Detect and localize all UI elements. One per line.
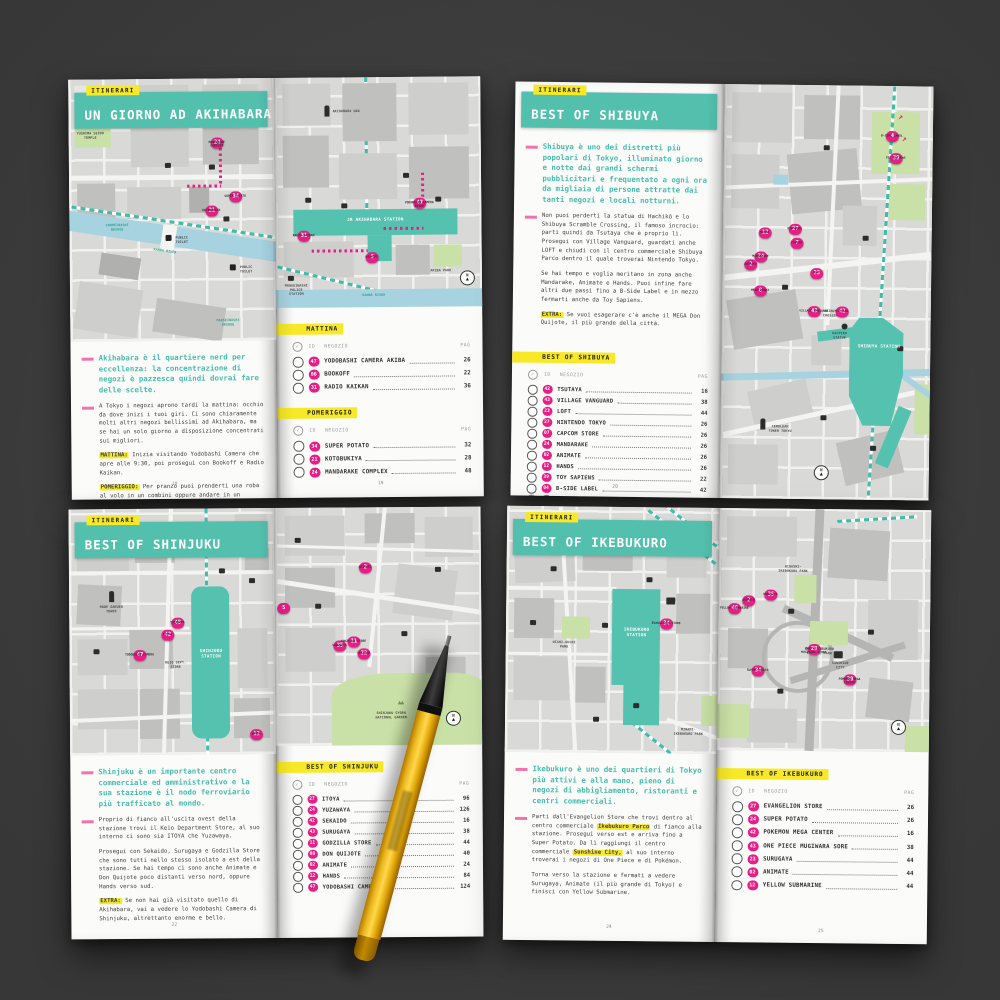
shop-page: 22 xyxy=(695,476,707,482)
list-item[interactable]: 27EVANGELION STORE26 xyxy=(732,801,914,813)
list-item[interactable]: 02ANIMATE44 xyxy=(731,867,913,879)
station-label: IKEBUKURO STATION xyxy=(618,627,655,639)
map-marker: 32SEKAIDO xyxy=(357,639,369,659)
map-label: MODE GAKUEN TOWER xyxy=(99,605,123,613)
page-title: BEST OF SHINJUKU xyxy=(85,536,222,552)
public-toilet-icon xyxy=(230,264,236,270)
map-block xyxy=(98,253,141,281)
paragraph-text: Torna verso la stazione e fermati a vede… xyxy=(531,872,682,896)
paragraph-text: A Tokyo i negozi aprono tardi la mattina… xyxy=(99,402,264,444)
highlight-label: MATTINA: xyxy=(99,453,128,459)
map-marker: 34SUPER POTATO xyxy=(229,182,241,202)
list-item[interactable]: 12HANDS26 xyxy=(527,462,707,474)
shop-page: 38 xyxy=(902,844,914,850)
shop-id-badge: 31 xyxy=(308,383,319,393)
shop-icon xyxy=(341,203,347,208)
page-akihabara-right: JR AKIHABARA STATION AKIHABARA UDX AKIBA… xyxy=(274,76,484,498)
map-block xyxy=(396,245,430,275)
checkbox[interactable] xyxy=(527,440,537,450)
map-marker: 2ANIMATE xyxy=(744,250,756,270)
title-banner: ITINERARI BEST OF SHINJUKU xyxy=(75,521,268,558)
checkbox[interactable] xyxy=(293,441,304,452)
map-marker: 42ITOYA xyxy=(161,621,173,641)
shop-page: 38 xyxy=(458,828,470,834)
checkbox[interactable] xyxy=(293,850,303,860)
shop-icon xyxy=(551,566,557,571)
checkbox[interactable] xyxy=(527,462,537,472)
map-block xyxy=(575,667,605,703)
map-block xyxy=(676,594,710,634)
shop-name: SUPER POTATO xyxy=(763,817,807,823)
list-item[interactable]: 02ANIMATE26 xyxy=(527,451,707,463)
shop-id-badge: 02 xyxy=(541,451,551,460)
check-icon: ✓ xyxy=(292,780,302,790)
dot-leader xyxy=(373,389,455,391)
body-paragraph: Prosegui con Sekaido, Surugaya e Godzill… xyxy=(99,847,264,891)
map-label: KEIO DEPT. STORE xyxy=(164,661,188,669)
list-item[interactable]: 12YELLOW SUBMARINE44 xyxy=(731,880,913,892)
spread-ikebukuro: IKEBUKURO STATION NISHI-GUCHI PARK MINAM… xyxy=(503,506,932,944)
shop-id-badge: 06 xyxy=(308,370,319,380)
checkbox[interactable] xyxy=(293,370,304,381)
dot-leader xyxy=(852,849,898,850)
map-block xyxy=(78,689,138,729)
shop-name: HANDS xyxy=(556,464,574,470)
shop-page: 44 xyxy=(695,410,707,416)
map-park xyxy=(905,726,929,752)
compass-icon: N xyxy=(460,270,475,285)
shop-page: 32 xyxy=(459,442,471,448)
dot-leader xyxy=(586,391,692,393)
shop-page: 126 xyxy=(458,806,470,812)
ikebukuro-station xyxy=(623,669,660,725)
map-marker: 2ANIMATE xyxy=(359,553,371,573)
map-marker: 6BOOKOFF xyxy=(366,243,378,263)
col-id: ID xyxy=(309,428,316,433)
dot-leader xyxy=(354,376,455,378)
rail-line xyxy=(630,721,679,754)
col-id: ID xyxy=(544,372,551,377)
checkbox[interactable] xyxy=(732,854,743,865)
map-marker: 2ANIMATE xyxy=(742,586,754,606)
body-paragraph: Torna verso la stazione e fermati a vede… xyxy=(531,871,702,899)
shop-page: 38 xyxy=(696,399,708,405)
page-ikebukuro-left: IKEBUKURO STATION NISHI-GUCHI PARK MINAM… xyxy=(503,506,720,942)
checkbox[interactable] xyxy=(293,872,303,882)
list-item[interactable]: 31RADIO KAIKAN36 xyxy=(293,381,471,393)
list-heading: BEST OF SHIBUYA xyxy=(512,351,615,363)
checkbox[interactable] xyxy=(527,484,537,494)
list-header-row: ✓ ID NEGOZIO PAG xyxy=(293,425,471,437)
map-marker: 21KOTOBUKIYA xyxy=(205,197,217,217)
list-item[interactable]: 34SUPER POTATO32 xyxy=(293,440,471,452)
itinerari-tag: ITINERARI xyxy=(86,85,139,95)
body-paragraph: MATTINA: Inizia visitando Yodobashi Came… xyxy=(99,450,264,477)
higashi-ikebukuro-park xyxy=(794,575,816,603)
shop-icon xyxy=(530,620,536,625)
map-marker: 12HANDS xyxy=(759,218,771,238)
map-marker: 12HANDS xyxy=(250,720,262,740)
shop-page: 26 xyxy=(695,454,707,460)
pond xyxy=(773,175,788,185)
map-road xyxy=(506,586,616,591)
shop-id-badge: 34 xyxy=(309,441,320,451)
spread-akihabara: YUSHIMA SEIDO TEMPLE KANDA RIVER SHOHEIB… xyxy=(68,76,484,500)
checkbox[interactable] xyxy=(293,454,304,465)
shop-icon xyxy=(602,623,608,628)
shop-name: SURUGAYA xyxy=(322,829,350,835)
spread-shibuya: ITINERARI BEST OF SHIBUYA Shibuya è uno … xyxy=(510,81,933,500)
mode-gakuen-tower-icon xyxy=(109,591,114,602)
shop-page: 84 xyxy=(458,872,470,878)
map-shinjuku-west: SHINJUKU STATION MODE GAKUEN TOWER KEIO … xyxy=(69,508,277,755)
list-item[interactable]: 27ITOYA96 xyxy=(293,794,470,805)
checkbox[interactable] xyxy=(293,795,303,805)
map-block xyxy=(747,708,797,743)
shop-icon xyxy=(868,630,874,635)
map-block xyxy=(827,528,890,582)
map-shibuya: SHIBUYA STATION SHIBUYA CROSSING HACHIKO… xyxy=(719,84,933,501)
map-block xyxy=(728,444,778,485)
shop-lists: BEST OF IKEBUKURO ✓ ID NEGOZIO PAG 27EVA… xyxy=(731,760,914,895)
shop-id-badge: 47 xyxy=(308,357,319,367)
shop-id-badge: 04 xyxy=(541,484,551,493)
dot-leader xyxy=(392,473,456,475)
list-item[interactable]: 21KOTOBUKIYA28 xyxy=(293,453,471,465)
cerulean-tower-icon xyxy=(760,418,765,429)
bridge-label: MANSEIBASHI BRIDGE xyxy=(214,318,242,326)
map-park xyxy=(717,704,749,738)
page-number: 25 xyxy=(715,928,927,935)
shop-icon xyxy=(93,649,99,654)
body-paragraph: EXTRA: Se vuoi esagerare c'è anche il ME… xyxy=(541,310,709,329)
page-shibuya-right: SHIBUYA STATION SHIBUYA CROSSING HACHIKO… xyxy=(719,84,933,501)
list-item[interactable]: 42TSUTAYA16 xyxy=(528,385,708,397)
shop-name: RADIO KAIKAN xyxy=(324,385,368,391)
map-akihabara-west: YUSHIMA SEIDO TEMPLE KANDA RIVER SHOHEIB… xyxy=(68,78,276,342)
shinjuku-station xyxy=(191,586,230,738)
map-label: AKIHABARA UDX xyxy=(332,109,360,113)
list-item[interactable]: 43VILLAGE VANGUARD38 xyxy=(528,396,708,408)
checkbox[interactable] xyxy=(732,801,743,812)
body-paragraph: Proprio di fianco all'uscita ovest della… xyxy=(99,815,264,842)
checkbox[interactable] xyxy=(732,827,743,838)
list-item[interactable]: 23SURUGAYA44 xyxy=(732,854,914,866)
paragraph-text: Se non hai già visitato quello di Akihab… xyxy=(99,898,257,922)
map-label: HACHIKO STATUE xyxy=(827,331,851,340)
list-header-row: ✓ ID NEGOZIO PAG xyxy=(292,779,469,790)
checkbox[interactable] xyxy=(293,383,304,394)
list-header-row: ✓ ID NEGOZIO PAG xyxy=(528,370,708,382)
route-dotted xyxy=(383,227,423,230)
checkbox[interactable] xyxy=(293,806,303,816)
checkbox[interactable] xyxy=(732,814,743,825)
shop-name: B-SIDE LABEL xyxy=(556,486,598,493)
map-marker: 31RADIO KAIKAN xyxy=(297,222,309,242)
list-heading: MATTINA xyxy=(276,323,343,335)
checkbox[interactable] xyxy=(293,828,303,838)
map-marker: 23LOFT xyxy=(810,259,822,279)
shop-page: 28 xyxy=(459,455,471,461)
dot-leader xyxy=(827,809,898,811)
station-label: SHINJUKU STATION xyxy=(195,648,226,660)
list-item[interactable]: 43ONE PIECE MUGIWARA SORE38 xyxy=(732,840,914,852)
shop-icon xyxy=(593,717,599,722)
map-ikebukuro-east: HIGASHI-IKEBUKURO PARK EAST-IKEBUKURO CE… xyxy=(717,508,932,752)
map-block xyxy=(732,92,793,143)
shop-name: TSUTAYA xyxy=(557,387,582,393)
checkbox[interactable] xyxy=(527,418,537,428)
minami-ikebukuro-park xyxy=(701,696,717,726)
checkbox[interactable] xyxy=(293,883,303,893)
park-label: AKIBA PARK xyxy=(430,268,452,272)
pen-tip-icon xyxy=(445,635,451,646)
map-block xyxy=(865,677,913,722)
checkbox[interactable] xyxy=(527,429,537,439)
list-item[interactable]: 07CAPCOM STORE26 xyxy=(527,429,707,441)
paragraph-text: Proprio di fianco all'uscita ovest della… xyxy=(99,816,260,840)
police-station-icon xyxy=(288,276,294,281)
list-item[interactable]: 47YODOBASHI CAMERA AKIBA26 xyxy=(293,355,471,367)
shop-id-badge: 43 xyxy=(747,841,758,851)
route-dotted xyxy=(187,184,221,187)
shop-page: 44 xyxy=(458,839,470,845)
map-marker: 24MANDARAKE COMPLEX xyxy=(211,128,223,148)
checkbox[interactable] xyxy=(526,495,536,498)
park-label: NISHI-GUCHI PARK xyxy=(550,640,579,649)
shop-icon xyxy=(249,578,255,583)
checkbox[interactable] xyxy=(731,880,742,891)
map-marker: 34SUPER POTATO xyxy=(752,656,764,676)
map-marker: 39TOY SAPIENS xyxy=(890,144,902,164)
shop-icon xyxy=(219,568,225,573)
list-heading: BEST OF SHINJUKU xyxy=(276,761,383,773)
text-column: Akihabara è il quartiere nerd per eccell… xyxy=(99,352,266,500)
checkbox[interactable] xyxy=(293,861,303,871)
shop-lists: MATTINA ✓ ID NEGOZIO PAG 47YODOBASHI CAM… xyxy=(292,314,471,480)
list-item[interactable]: 23LOFT44 xyxy=(527,407,707,419)
list-item[interactable]: 24SUPER POTATO26 xyxy=(732,814,914,826)
compass-icon: N xyxy=(446,711,461,726)
list-heading: POMERIGGIO xyxy=(277,408,357,420)
akiba-park xyxy=(434,244,462,266)
intro-paragraph: Ikebukuro è uno dei quartieri di Tokyo p… xyxy=(532,764,703,808)
shop-id-badge: 24 xyxy=(542,440,552,449)
page-shibuya-left: ITINERARI BEST OF SHIBUYA Shibuya è uno … xyxy=(510,81,724,498)
shop-id-badge: 11 xyxy=(307,839,317,848)
paragraph-text: Non puoi perderti la statua di Hachikō e… xyxy=(541,213,702,264)
col-pag: PAG xyxy=(460,343,470,348)
intro-paragraph: Akihabara è il quartiere nerd per eccell… xyxy=(99,352,264,396)
parco-building-icon xyxy=(666,597,675,604)
rail-line xyxy=(206,736,209,754)
dot-leader xyxy=(826,888,897,890)
map-block xyxy=(285,628,335,672)
shop-icon xyxy=(824,145,830,150)
shop-id-badge: 07 xyxy=(542,429,552,438)
col-id: ID xyxy=(308,782,315,787)
list-item[interactable]: 06BOOKOFF22 xyxy=(293,368,471,380)
body-paragraph: Parti dall'Evangelion Store che trovi de… xyxy=(532,813,704,867)
shop-id-badge: 12 xyxy=(747,880,758,890)
list-item[interactable]: 24MANDARAKE COMPLEX48 xyxy=(294,466,472,478)
nishi-guchi-park xyxy=(562,616,590,638)
text-column: Shibuya è uno dei distretti più popolari… xyxy=(540,142,710,336)
map-ikebukuro-west: IKEBUKURO STATION NISHI-GUCHI PARK MINAM… xyxy=(505,506,720,754)
compass-icon: N xyxy=(814,465,829,480)
checkbox[interactable] xyxy=(294,467,305,478)
col-id: ID xyxy=(308,344,315,349)
map-label: CERULEAN TOWER TOKYU xyxy=(766,425,794,434)
map-marker: 47YODOBASHI CAMERA xyxy=(133,641,145,661)
map-block xyxy=(77,639,127,675)
shop-icon xyxy=(295,538,301,543)
shop-name: BOOKOFF xyxy=(324,372,350,378)
checkbox[interactable] xyxy=(732,840,743,851)
dot-leader xyxy=(812,822,898,824)
checkbox[interactable] xyxy=(293,839,303,849)
map-road xyxy=(69,174,275,181)
shop-name: MEGA DON QUIJOTE xyxy=(556,497,612,498)
shop-page: 24 xyxy=(458,861,470,867)
paragraph-text: Se hai tempo e voglia meritano in zona a… xyxy=(541,271,699,304)
checkbox[interactable] xyxy=(293,357,304,368)
page-number: 24 xyxy=(503,924,715,931)
shop-id-badge: 27 xyxy=(307,795,317,804)
dot-leader xyxy=(366,460,456,462)
text-column: Ikebukuro è uno dei quartieri di Tokyo p… xyxy=(531,764,703,905)
shop-id-badge: 27 xyxy=(542,418,552,427)
check-icon: ✓ xyxy=(528,370,538,380)
shop-id-badge: 42 xyxy=(307,817,317,826)
shop-icon xyxy=(401,631,407,636)
list-item[interactable]: 42POKEMON MEGA CENTER16 xyxy=(732,827,914,839)
itinerari-tag: ITINERARI xyxy=(525,512,578,523)
check-icon: ✓ xyxy=(732,786,742,796)
dot-leader xyxy=(837,835,897,837)
shop-name: SEKAIDO xyxy=(322,818,347,824)
map-block xyxy=(282,84,330,126)
shop-icon xyxy=(782,285,788,290)
shop-id-badge: 24 xyxy=(307,806,317,815)
map-marker: 34EVANGELION STORE xyxy=(660,609,672,629)
shop-name: TOY SAPIENS xyxy=(556,475,595,481)
dot-leader xyxy=(610,425,691,427)
shibuya-station xyxy=(848,318,903,427)
list-item[interactable]: 04B-SIDE LABEL42 xyxy=(527,484,707,496)
shop-page: 36 xyxy=(459,384,471,390)
shop-page: 124 xyxy=(458,883,470,889)
page-number: 19 xyxy=(278,480,484,487)
map-block xyxy=(365,513,415,543)
map-label: YUSHIMA SEIDO TEMPLE xyxy=(73,131,108,140)
checkbox[interactable] xyxy=(528,396,538,406)
dot-leader xyxy=(793,874,898,876)
shop-icon xyxy=(820,415,826,420)
shop-page: 44 xyxy=(901,871,913,877)
shop-page: 26 xyxy=(902,818,914,824)
shop-page: 44 xyxy=(902,858,914,864)
shop-icon xyxy=(646,577,652,582)
river-label: KANDA RIVER xyxy=(360,293,388,297)
shop-page: 44 xyxy=(901,884,913,890)
shop-name: VILLAGE VANGUARD xyxy=(557,398,613,405)
list-header-row: ✓ ID NEGOZIO PAG xyxy=(732,786,914,798)
body-paragraph: Non puoi perderti la statua di Hachikō e… xyxy=(541,212,710,266)
page-ikebukuro-right: HIGASHI-IKEBUKURO PARK EAST-IKEBUKURO CE… xyxy=(715,508,932,944)
page-title: UN GIORNO AD AKIHABARA xyxy=(84,106,272,123)
shop-name: KOTOBUKIYA xyxy=(325,456,362,462)
map-marker: 5 xyxy=(277,594,289,614)
dot-leader xyxy=(575,413,691,415)
checkbox[interactable] xyxy=(293,817,303,827)
checkbox[interactable] xyxy=(528,385,538,395)
list-item[interactable]: 08MEGA DON QUIJOTE42 xyxy=(526,495,706,498)
body-paragraph: A Tokyo i negozi aprono tardi la mattina… xyxy=(99,401,264,446)
shop-page: 42 xyxy=(695,487,707,493)
map-akihabara-east: JR AKIHABARA STATION AKIHABARA UDX AKIBA… xyxy=(274,76,482,308)
shop-name: YUZAWAYA xyxy=(322,807,350,813)
shop-page: 26 xyxy=(695,443,707,449)
map-block xyxy=(513,656,569,701)
shop-name: YODOBASHI CAMERA AKIBA xyxy=(324,358,405,365)
list-item[interactable]: 39TOY SAPIENS22 xyxy=(527,473,707,485)
shop-icon xyxy=(435,197,441,202)
map-marker: 29ONE PIECE MUGIWARA STORE xyxy=(808,635,820,655)
shop-id-badge: 23 xyxy=(747,854,758,864)
list-item[interactable]: 24MANDARAKE26 xyxy=(527,440,707,452)
dot-leader xyxy=(409,362,454,363)
col-negozio: NEGOZIO xyxy=(324,344,348,349)
col-negozio: NEGOZIO xyxy=(560,373,584,378)
shop-name: ANIMATE xyxy=(763,869,789,875)
map-label: MANSEIBASHI POLICE STATION xyxy=(282,284,311,297)
map-block xyxy=(408,82,468,135)
page-title: BEST OF SHIBUYA xyxy=(531,107,659,124)
shop-page: 40 xyxy=(458,850,470,856)
shop-id-badge: 42 xyxy=(542,385,552,394)
page-title: BEST OF IKEBUKURO xyxy=(523,534,668,551)
shop-id-badge: 12 xyxy=(308,872,318,881)
text-column: Shinjuku è un importante centro commerci… xyxy=(98,766,264,929)
shop-id-badge: 23 xyxy=(542,407,552,416)
map-block xyxy=(726,289,803,350)
page-akihabara-left: YUSHIMA SEIDO TEMPLE KANDA RIVER SHOHEIB… xyxy=(68,78,278,500)
highlight-label: EXTRA: xyxy=(99,898,122,904)
inline-highlight: Sunshine City, xyxy=(573,849,623,856)
checkbox[interactable] xyxy=(527,407,537,417)
shop-id-badge: 02 xyxy=(307,861,317,870)
shop-icon xyxy=(315,604,321,609)
checkbox[interactable] xyxy=(527,451,537,461)
col-negozio: NEGOZIO xyxy=(764,789,788,794)
station-label: JR AKIHABARA STATION xyxy=(315,217,435,224)
shop-icon xyxy=(870,446,876,451)
route-arrow-icon xyxy=(898,112,903,121)
shop-name: DON QUIJOTE xyxy=(322,851,361,857)
map-block xyxy=(339,153,397,200)
col-pag: PAG xyxy=(904,791,914,796)
map-block xyxy=(843,205,877,245)
shop-id-badge: 08 xyxy=(307,850,317,859)
list-item[interactable]: 27NINTENDO TOKYO26 xyxy=(527,418,707,430)
checkbox[interactable] xyxy=(527,473,537,483)
checkbox[interactable] xyxy=(731,867,742,878)
map-marker: 46YELLOW SUBMARINE xyxy=(728,594,740,614)
map-block xyxy=(727,516,797,557)
shop-id-badge: 24 xyxy=(747,815,758,825)
shop-name: NINTENDO TOKYO xyxy=(557,420,606,427)
